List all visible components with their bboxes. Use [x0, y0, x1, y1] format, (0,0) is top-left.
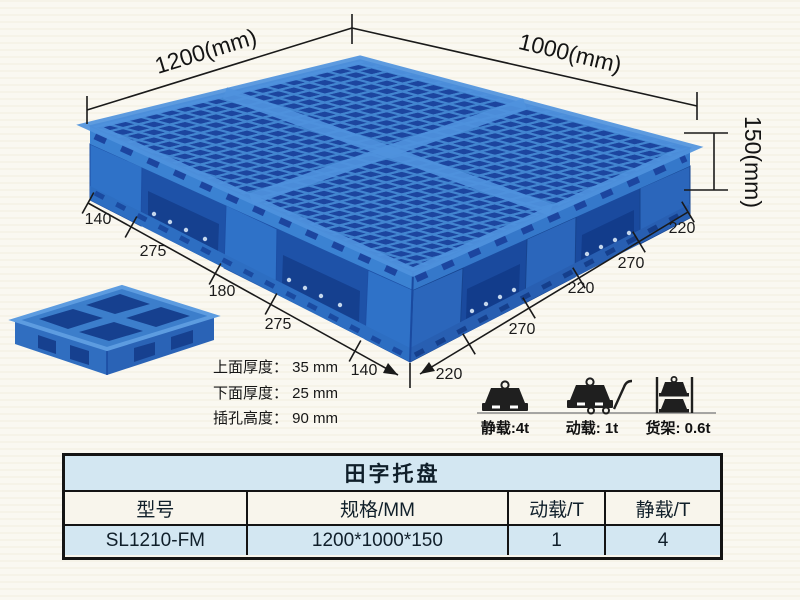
pallet-underside-view [15, 287, 214, 375]
cell-static-load: 4 [604, 526, 720, 555]
dim-left-4: 140 [351, 362, 378, 379]
header-static-load: 静载/T [604, 492, 720, 524]
dim-label-1000: 1000(mm) [516, 28, 624, 78]
dim-left-1: 275 [140, 243, 167, 260]
spec-slot-height: 插孔高度： 90 mm [213, 410, 338, 427]
dim-label-150: 150(mm) [740, 116, 766, 208]
dim-left-0: 140 [85, 211, 112, 228]
dim-label-1200: 1200(mm) [152, 23, 260, 79]
spec-table-data-row: SL1210-FM 1200*1000*150 1 4 [65, 524, 720, 555]
dynamic-load-caption: 动载: 1t [566, 419, 619, 437]
spec-table: 田字托盘 型号 规格/MM 动载/T 静载/T SL1210-FM 1200*1… [62, 453, 723, 560]
cell-spec: 1200*1000*150 [246, 526, 507, 555]
dim-right-0: 220 [669, 220, 696, 237]
spec-table-header-row: 型号 规格/MM 动载/T 静载/T [65, 490, 720, 524]
dynamic-load-icon [567, 378, 632, 413]
header-model: 型号 [65, 492, 246, 524]
spec-top-thickness: 上面厚度： 35 mm [213, 359, 338, 376]
header-spec: 规格/MM [246, 492, 507, 524]
header-dynamic-load: 动载/T [507, 492, 604, 524]
static-load-icon [482, 381, 528, 411]
dim-left-2: 180 [209, 283, 236, 300]
cell-model: SL1210-FM [65, 526, 246, 555]
thickness-specs: 上面厚度： 35 mm 下面厚度： 25 mm 插孔高度： 90 mm [213, 359, 338, 427]
product-sheet: 1200(mm) 1000(mm) 150(mm) 140 275 180 27… [0, 0, 800, 600]
dim-left-3: 275 [265, 316, 292, 333]
dim-right-2: 220 [568, 280, 595, 297]
load-capacity-icons: 静载:4t 动载: 1t 货架: 0.6t [477, 377, 716, 437]
cell-dynamic-load: 1 [507, 526, 604, 555]
dim-right-1: 270 [618, 255, 645, 272]
spec-table-title: 田字托盘 [65, 456, 720, 490]
dim-right-3: 270 [509, 321, 536, 338]
dim-right-4: 220 [436, 366, 463, 383]
dimension-arrowheads [383, 362, 435, 375]
rack-load-icon [657, 377, 692, 413]
static-load-caption: 静载:4t [481, 419, 529, 437]
rack-load-caption: 货架: 0.6t [645, 419, 710, 437]
spec-bottom-thickness: 下面厚度： 25 mm [213, 385, 338, 402]
